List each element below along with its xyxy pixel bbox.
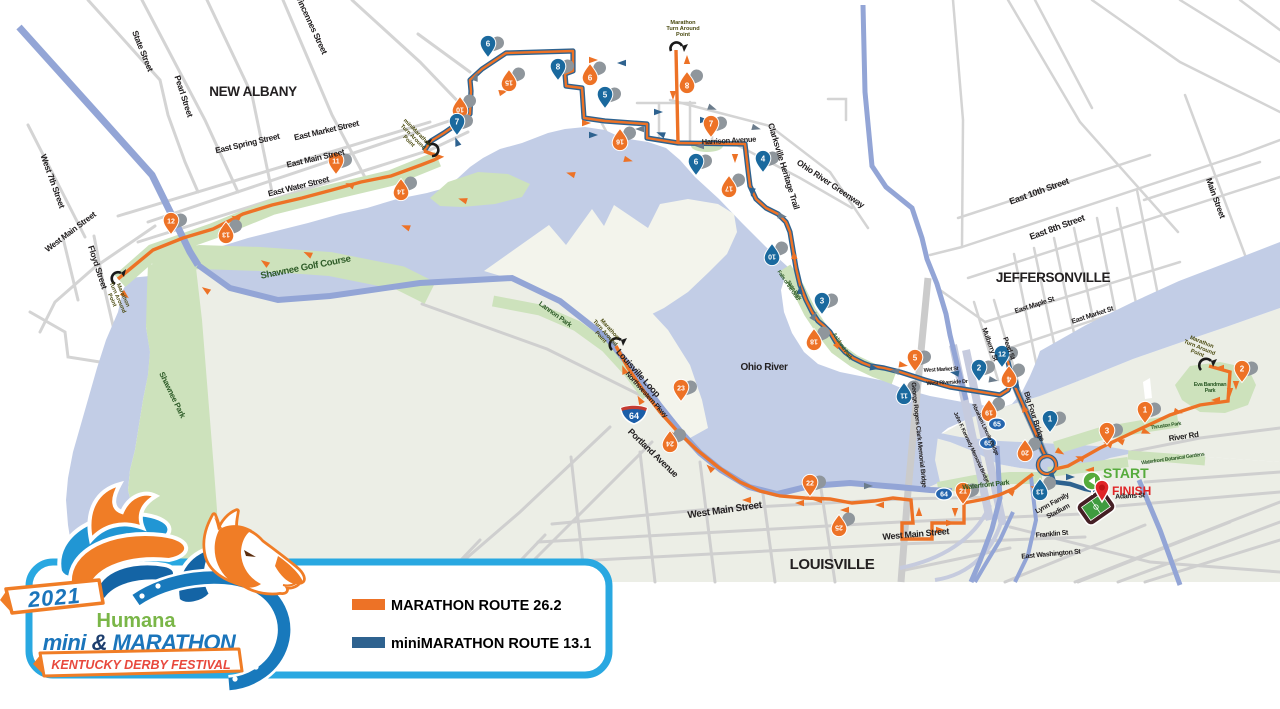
svg-text:13: 13 xyxy=(1036,488,1044,495)
svg-text:22: 22 xyxy=(806,481,814,488)
svg-text:24: 24 xyxy=(666,440,674,447)
svg-text:12: 12 xyxy=(998,352,1006,359)
svg-text:2021: 2021 xyxy=(26,583,82,613)
svg-text:9: 9 xyxy=(587,73,592,82)
svg-text:16: 16 xyxy=(616,138,624,145)
svg-text:4: 4 xyxy=(1006,375,1011,384)
svg-text:23: 23 xyxy=(677,386,685,393)
svg-text:JEFFERSONVILLE: JEFFERSONVILLE xyxy=(996,270,1111,285)
svg-text:20: 20 xyxy=(1021,449,1029,456)
svg-text:1: 1 xyxy=(1143,406,1148,415)
svg-text:5: 5 xyxy=(913,354,918,363)
svg-text:START: START xyxy=(1103,465,1149,481)
svg-text:64: 64 xyxy=(940,492,948,499)
svg-text:LOUISVILLE: LOUISVILLE xyxy=(790,556,875,573)
svg-text:3: 3 xyxy=(820,297,825,306)
svg-text:3: 3 xyxy=(1105,427,1110,436)
svg-text:11: 11 xyxy=(900,392,908,399)
svg-text:7: 7 xyxy=(709,120,714,129)
svg-text:25: 25 xyxy=(835,524,843,531)
svg-text:5: 5 xyxy=(603,91,608,100)
svg-text:8: 8 xyxy=(556,63,561,72)
svg-text:MARATHON ROUTE 26.2: MARATHON ROUTE 26.2 xyxy=(391,598,562,614)
svg-text:65: 65 xyxy=(993,422,1001,429)
svg-text:Humana: Humana xyxy=(97,610,177,632)
svg-text:10: 10 xyxy=(768,253,776,260)
svg-text:15: 15 xyxy=(505,79,513,86)
svg-text:2: 2 xyxy=(977,364,982,373)
svg-text:Point: Point xyxy=(676,32,690,38)
svg-text:8: 8 xyxy=(684,81,689,90)
svg-text:KENTUCKY DERBY FESTIVAL: KENTUCKY DERBY FESTIVAL xyxy=(51,658,230,672)
svg-text:1: 1 xyxy=(1048,415,1053,424)
svg-text:NEW ALBANY: NEW ALBANY xyxy=(209,84,297,99)
svg-text:12: 12 xyxy=(167,219,175,226)
svg-text:2: 2 xyxy=(1240,365,1245,374)
svg-text:4: 4 xyxy=(761,155,766,164)
svg-text:13: 13 xyxy=(222,231,230,238)
svg-text:17: 17 xyxy=(725,185,733,192)
svg-text:19: 19 xyxy=(985,409,993,416)
svg-text:18: 18 xyxy=(810,338,818,345)
svg-text:Ohio River: Ohio River xyxy=(740,362,788,373)
svg-text:11: 11 xyxy=(332,159,340,166)
svg-text:6: 6 xyxy=(486,40,491,49)
svg-text:64: 64 xyxy=(629,411,639,421)
svg-text:7: 7 xyxy=(455,118,460,127)
svg-text:14: 14 xyxy=(397,188,405,195)
svg-text:Park: Park xyxy=(1205,388,1217,394)
svg-text:6: 6 xyxy=(694,158,699,167)
svg-text:miniMARATHON ROUTE 13.1: miniMARATHON ROUTE 13.1 xyxy=(391,636,591,652)
svg-text:10: 10 xyxy=(456,106,464,113)
